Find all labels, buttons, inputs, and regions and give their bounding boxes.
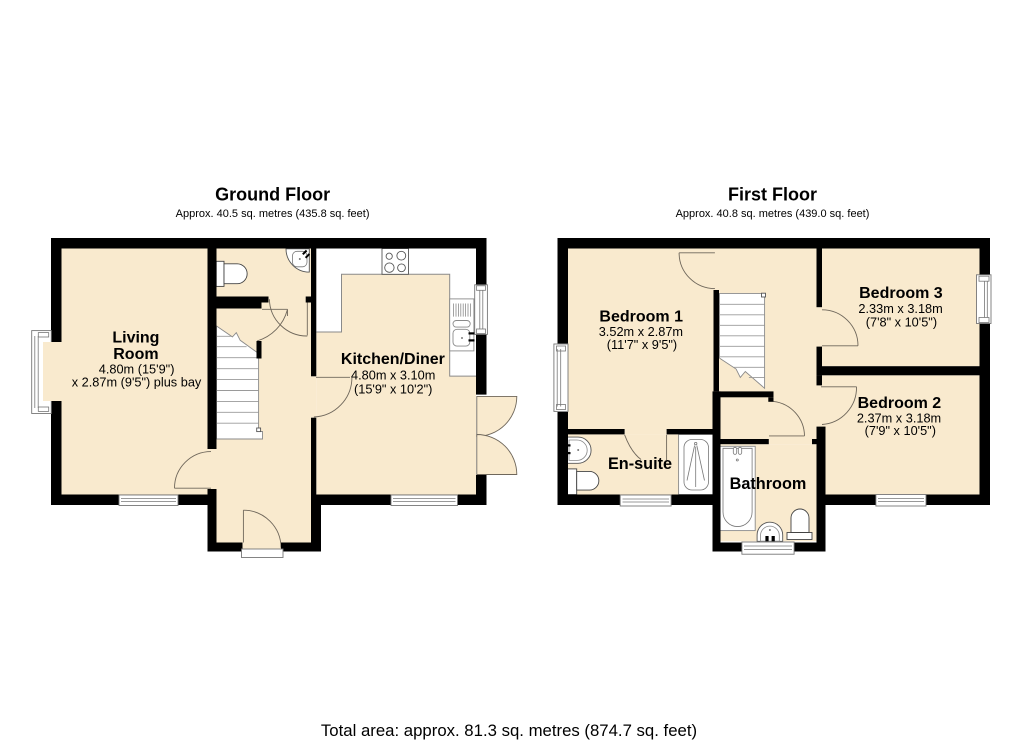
- svg-text:(11'7" x 9'5"): (11'7" x 9'5"): [607, 337, 677, 352]
- svg-text:Bathroom: Bathroom: [730, 475, 807, 493]
- svg-text:Kitchen/Diner: Kitchen/Diner: [341, 351, 445, 368]
- svg-text:En-suite: En-suite: [608, 455, 672, 473]
- svg-text:Ground Floor: Ground Floor: [215, 185, 330, 205]
- svg-text:Approx. 40.8 sq. metres (439.0: Approx. 40.8 sq. metres (439.0 sq. feet): [676, 208, 870, 220]
- svg-text:(7'9" x 10'5"): (7'9" x 10'5"): [865, 423, 936, 438]
- svg-text:Bedroom 2: Bedroom 2: [858, 395, 942, 412]
- svg-text:Bedroom 1: Bedroom 1: [599, 308, 683, 325]
- svg-text:Bedroom 3: Bedroom 3: [859, 285, 943, 302]
- svg-text:Living: Living: [112, 330, 159, 347]
- svg-text:(7'8" x 10'5"): (7'8" x 10'5"): [866, 314, 937, 329]
- svg-text:Approx. 40.5 sq. metres (435.8: Approx. 40.5 sq. metres (435.8 sq. feet): [176, 208, 370, 220]
- svg-text:Room: Room: [113, 346, 158, 363]
- svg-text:x 2.87m (9'5") plus bay: x 2.87m (9'5") plus bay: [72, 375, 202, 390]
- svg-text:(15'9" x 10'2"): (15'9" x 10'2"): [354, 381, 432, 396]
- svg-text:4.80m x 3.10m: 4.80m x 3.10m: [351, 367, 435, 382]
- svg-text:First Floor: First Floor: [728, 185, 817, 205]
- svg-text:Total area: approx. 81.3 sq. m: Total area: approx. 81.3 sq. metres (874…: [321, 721, 697, 740]
